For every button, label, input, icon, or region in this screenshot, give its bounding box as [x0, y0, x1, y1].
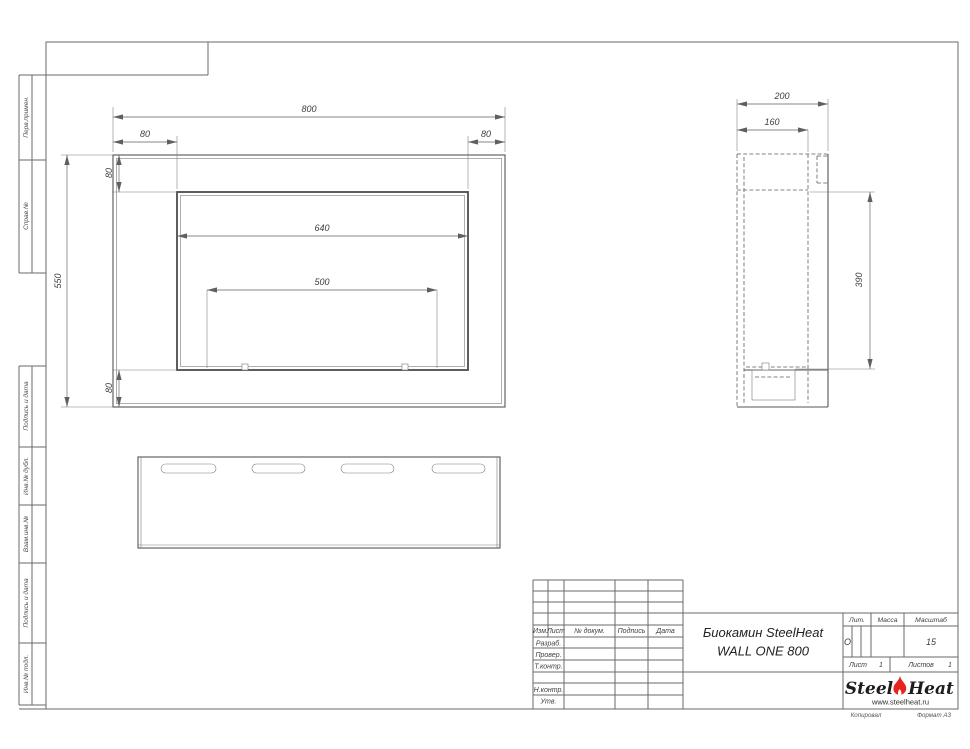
dim-front-right-offset: 80	[481, 129, 491, 139]
tb-scale-value: 15	[926, 637, 937, 647]
tb-sheets-label: Листов	[907, 662, 934, 669]
tb-row-nkontr: Н.контр.	[534, 687, 564, 694]
footer-format: Формат А3	[917, 712, 951, 719]
strip-label-inv-dubl: Инв.№ дубл.	[22, 457, 30, 495]
tb-sheets-value: 1	[948, 662, 952, 669]
strip-label-podpis-data-1: Подпись и дата	[22, 381, 30, 431]
strip-label-perv-primen: Перв.примен.	[23, 96, 30, 138]
tb-row-tkontr: Т.контр.	[534, 664, 562, 671]
tb-lit-value: О	[844, 637, 851, 647]
tb-row-utv: Утв.	[540, 699, 557, 706]
tb-hdr-docnum: № докум.	[574, 627, 605, 635]
front-burner-tab-left	[242, 364, 248, 370]
strip-label-sprav-no: Справ.№	[23, 202, 30, 230]
logo-text-steel: Steel	[845, 679, 894, 699]
tb-mass-label: Масса	[877, 617, 897, 624]
tb-row-razrab: Разраб.	[536, 640, 561, 648]
dim-front-width: 800	[301, 104, 316, 114]
technical-drawing: Перв.примен. Справ.№ Подпись и дата Инв.…	[0, 0, 970, 749]
logo-text-heat: Heat	[907, 679, 954, 699]
sheet-background	[0, 0, 970, 749]
dim-side-depth: 200	[773, 91, 789, 101]
tb-title-line1: Биокамин SteelHeat	[703, 625, 825, 640]
dim-front-burner-width: 500	[314, 277, 329, 287]
tb-hdr-podpis: Подпись	[618, 627, 646, 635]
logo-url: www.steelheat.ru	[871, 698, 929, 707]
tb-hdr-data: Дата	[655, 628, 675, 635]
tb-row-prover: Провер.	[535, 652, 561, 659]
dim-front-bottom-offset: 80	[104, 383, 114, 393]
front-burner-tab-right	[402, 364, 408, 370]
tb-hdr-list: Лист	[546, 628, 565, 635]
dim-side-inner-depth: 160	[764, 117, 779, 127]
strip-label-podpis-data-2: Подпись и дата	[22, 578, 30, 628]
tb-sheet-value: 1	[879, 662, 883, 669]
footer-kopiroval: Копировал	[851, 712, 882, 719]
strip-label-vzam-inv: Взам.инв.№	[23, 516, 30, 553]
tb-lit-label: Лит.	[848, 617, 865, 624]
side-burner-tab	[762, 363, 769, 370]
dim-front-height: 550	[53, 273, 63, 288]
tb-scale-label: Масштаб	[915, 616, 948, 624]
tb-hdr-izm: Изм.	[533, 628, 548, 635]
tb-sheet-label: Лист	[848, 662, 867, 669]
dim-front-opening-width: 640	[314, 223, 329, 233]
tb-title-line2: WALL ONE 800	[717, 644, 810, 659]
dim-front-top-offset: 80	[104, 168, 114, 178]
drawing-sheet: Перв.примен. Справ.№ Подпись и дата Инв.…	[0, 0, 970, 749]
dim-side-opening-height: 390	[854, 272, 864, 287]
dim-front-left-offset: 80	[140, 129, 150, 139]
strip-label-inv-podl: Инв.№ подл.	[22, 655, 30, 694]
